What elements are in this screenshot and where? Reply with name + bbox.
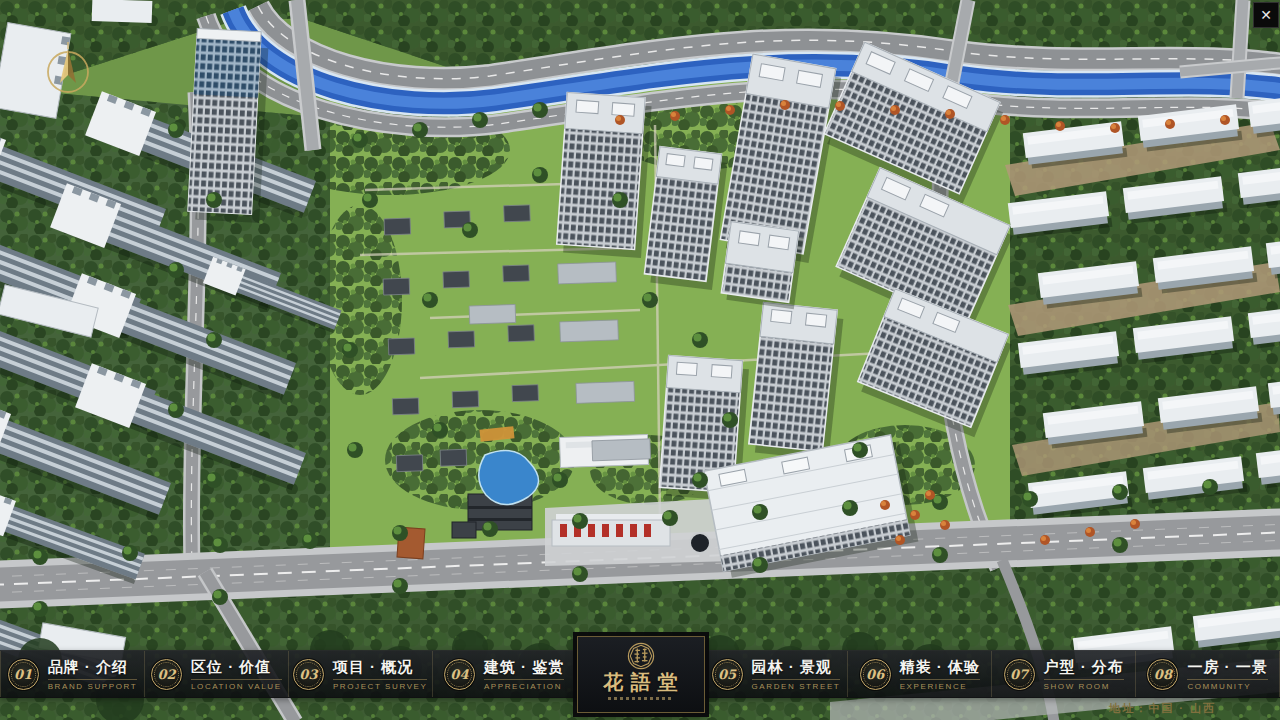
nav-item-landscape[interactable]: 05 园林 · 景观GARDEN STREET	[705, 651, 849, 697]
nav-item-floorplans[interactable]: 07 户型 · 分布SHOW ROOM	[992, 651, 1136, 697]
nav-item-label: 品牌 · 介绍	[48, 658, 128, 677]
nav-item-interior-experience[interactable]: 06 精装 · 体验EXPERIENCE	[848, 651, 992, 697]
nav-item-label: 项目 · 概况	[333, 658, 413, 677]
nav-item-label: 建筑 · 鉴赏	[484, 658, 564, 677]
nav-number-badge: 08	[1147, 659, 1178, 690]
nav-item-label: 户型 · 分布	[1044, 658, 1124, 677]
nav-number-badge: 06	[860, 659, 891, 690]
nav-item-number: 06	[866, 668, 884, 681]
nav-item-subtitle: COMMUNITY	[1187, 679, 1267, 691]
nav-item-subtitle: PROJECT SURVEY	[333, 679, 428, 691]
nav-item-label: 精装 · 体验	[900, 658, 980, 677]
nav-item-number: 05	[718, 668, 736, 681]
project-address: 地址：中国 · 山西	[1109, 701, 1216, 716]
project-logo-title: 花語堂	[597, 671, 685, 693]
nav-item-number: 03	[299, 668, 317, 681]
nav-item-label: 一房 · 一景	[1187, 658, 1267, 677]
project-logo-panel[interactable]: 花語堂	[577, 636, 705, 713]
nav-item-number: 08	[1154, 668, 1172, 681]
nav-item-number: 02	[157, 668, 175, 681]
close-button[interactable]: ✕	[1253, 2, 1279, 28]
nav-item-project-overview[interactable]: 03 项目 · 概况PROJECT SURVEY	[289, 651, 433, 697]
masterplan-aerial-map	[0, 0, 1280, 720]
logo-tagline	[608, 697, 674, 700]
nav-item-subtitle: LOCATION VALUE	[191, 679, 282, 691]
nav-item-number: 07	[1010, 668, 1028, 681]
nav-item-subtitle: APPRECIATION	[484, 679, 564, 691]
seal-icon	[627, 642, 655, 670]
nav-number-badge: 01	[8, 659, 39, 690]
nav-item-brand-intro[interactable]: 01 品牌 · 介绍BRAND SUPPORT	[0, 651, 145, 697]
nav-item-subtitle: SHOW ROOM	[1044, 679, 1124, 691]
nav-item-subtitle: GARDEN STREET	[752, 679, 841, 691]
nav-number-badge: 04	[444, 659, 475, 690]
compass-icon	[42, 40, 94, 96]
nav-item-room-view[interactable]: 08 一房 · 一景COMMUNITY	[1136, 651, 1280, 697]
nav-item-architecture[interactable]: 04 建筑 · 鉴赏APPRECIATION	[433, 651, 577, 697]
nav-item-label: 园林 · 景观	[752, 658, 832, 677]
nav-number-badge: 02	[151, 659, 182, 690]
nav-item-number: 04	[450, 668, 468, 681]
nav-item-subtitle: BRAND SUPPORT	[48, 679, 138, 691]
nav-number-badge: 05	[712, 659, 743, 690]
nav-item-subtitle: EXPERIENCE	[900, 679, 980, 691]
nav-number-badge: 03	[293, 659, 324, 690]
nav-item-number: 01	[14, 668, 32, 681]
nav-number-badge: 07	[1004, 659, 1035, 690]
bottom-navigation-bar: 01 品牌 · 介绍BRAND SUPPORT 02 区位 · 价值LOCATI…	[0, 650, 1280, 698]
nav-item-label: 区位 · 价值	[191, 658, 271, 677]
nav-item-location-value[interactable]: 02 区位 · 价值LOCATION VALUE	[145, 651, 289, 697]
